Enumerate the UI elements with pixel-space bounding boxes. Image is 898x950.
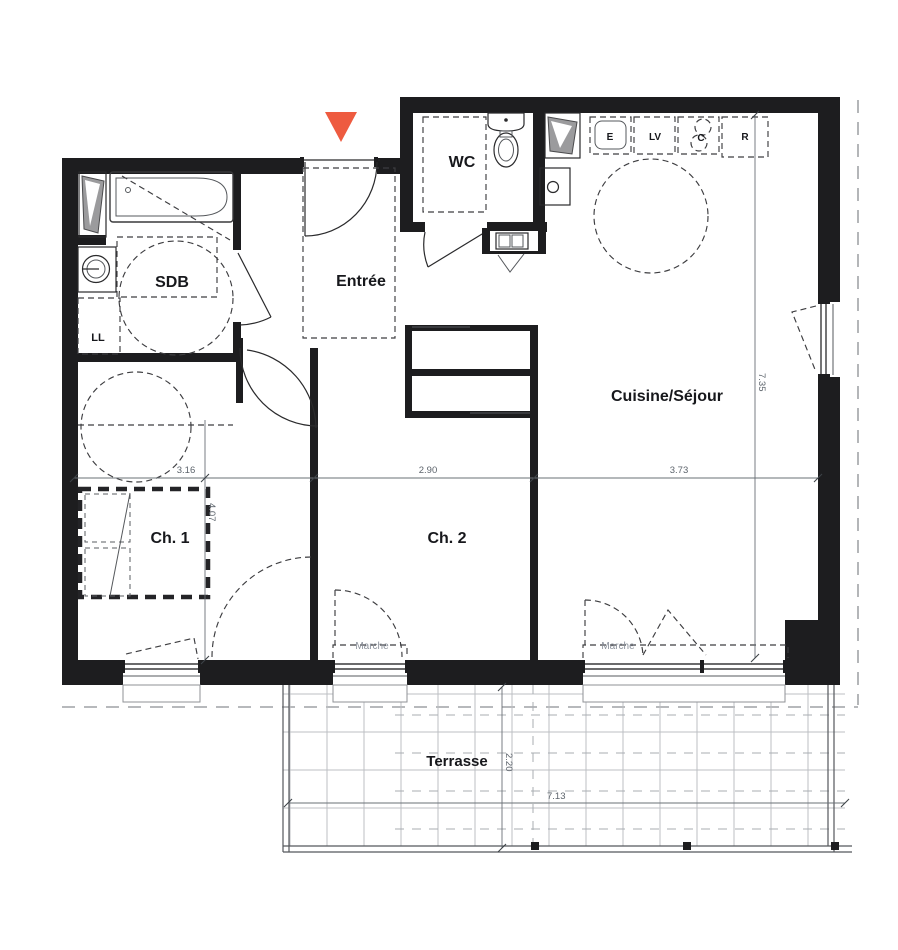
dim-cuisine-depth: 7.35 — [756, 373, 767, 392]
room-label-cuisine-sejour: Cuisine/Séjour — [611, 388, 723, 405]
dim-cuisine-width: 3.73 — [670, 465, 689, 476]
room-label-ch2: Ch. 2 — [427, 530, 466, 547]
property-boundary — [62, 100, 858, 707]
walls — [62, 97, 840, 685]
dim-terrasse-depth: 2.20 — [503, 753, 514, 772]
kitchen-duct — [545, 113, 580, 158]
window-flap — [792, 306, 816, 372]
entrance-marker-icon — [325, 112, 357, 142]
hall-turning-circle — [81, 372, 191, 482]
bed-pillow — [85, 548, 130, 596]
room-label-ch1: Ch. 1 — [150, 530, 189, 547]
window-flap — [126, 638, 198, 659]
vent-niche — [482, 228, 546, 272]
toilet — [488, 113, 524, 167]
room-label-terrasse: Terrasse — [426, 753, 487, 770]
wc-door — [424, 231, 487, 267]
dim-ch1-depth: 4.07 — [206, 503, 217, 522]
terrace-post — [683, 842, 691, 850]
bathtub — [110, 172, 233, 240]
label-step-cuisine: Marche — [601, 641, 635, 652]
label-dishwasher: LV — [649, 132, 661, 143]
washbasin — [78, 247, 116, 292]
dim-ch2-width: 2.90 — [419, 465, 438, 476]
sdb-turning-circle — [119, 241, 233, 355]
ch1-door-swing — [212, 557, 312, 657]
terrace-post — [831, 842, 839, 850]
wc-room — [423, 113, 580, 272]
washing-machine-slot — [78, 298, 120, 354]
kitchen-turning-circle — [594, 159, 708, 273]
hall-doors — [78, 348, 318, 657]
label-cooktop: C — [697, 133, 704, 144]
terrace-border — [283, 685, 852, 852]
room-label-sdb: SDB — [155, 274, 189, 291]
dim-terrasse-width: 7.13 — [547, 791, 566, 802]
terrace-post — [531, 842, 539, 850]
entree-clearance — [303, 168, 395, 338]
dim-ch1-width: 3.16 — [177, 465, 196, 476]
floor-plan-drawing: WC SDB Entrée Cuisine/Séjour Ch. 1 Ch. 2… — [0, 0, 898, 950]
label-step-ch2: Marche — [355, 641, 389, 652]
duct — [79, 172, 106, 237]
floor-plan-page: WC SDB Entrée Cuisine/Séjour Ch. 1 Ch. 2… — [0, 0, 898, 950]
terrace — [283, 685, 852, 852]
entrance-door — [300, 157, 380, 236]
room-label-wc: WC — [449, 154, 476, 171]
sdb-door — [238, 253, 271, 325]
ch1-window — [121, 638, 202, 702]
bed-pillow — [85, 494, 130, 542]
terrace-tile-grid — [283, 685, 845, 846]
room-label-entree: Entrée — [336, 273, 386, 290]
label-fridge: R — [741, 132, 749, 143]
bathroom-fixtures — [78, 172, 271, 355]
label-sink: E — [607, 132, 614, 143]
sejour-window — [792, 300, 840, 378]
label-washing-machine: LL — [91, 332, 105, 344]
